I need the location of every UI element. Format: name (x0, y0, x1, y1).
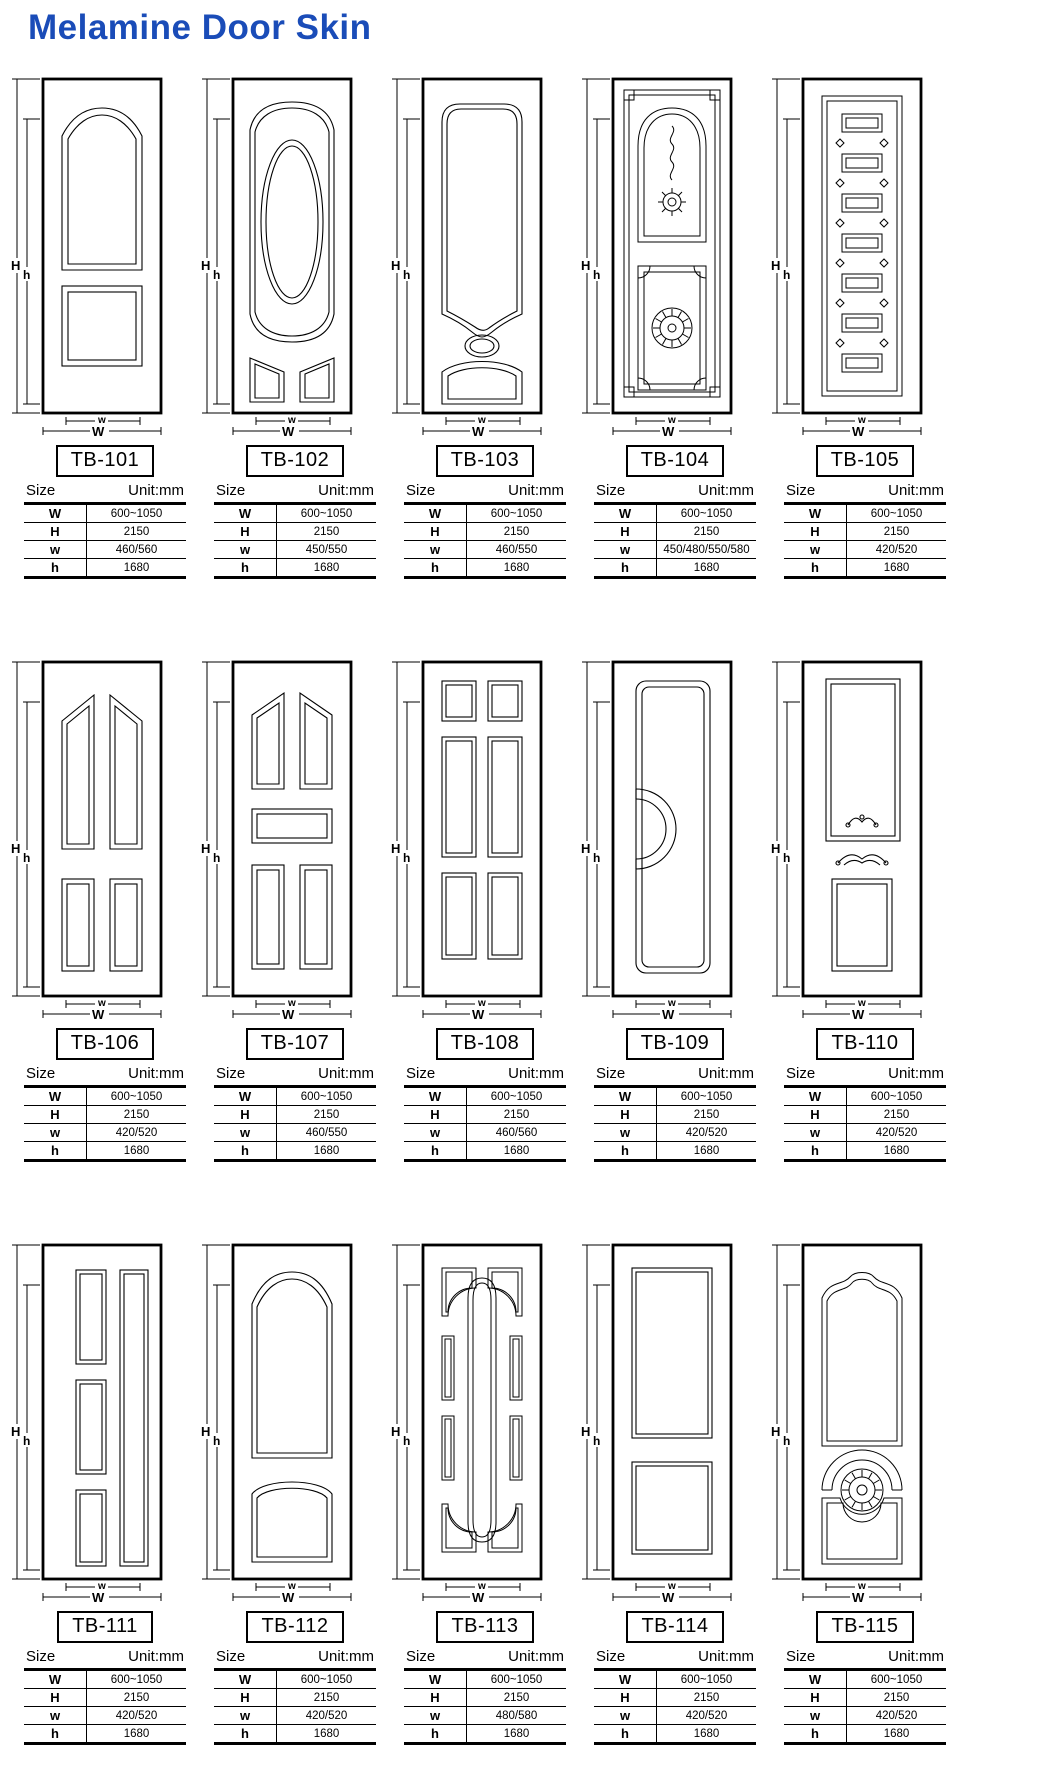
spec-value: 2150 (657, 1689, 757, 1707)
unit-label: Unit:mm (508, 482, 564, 499)
door-outline (613, 662, 731, 996)
spec-row-outer-width: W 600~1050 (24, 1670, 186, 1689)
spec-value: 1680 (87, 559, 187, 578)
dimension-lines (582, 1245, 731, 1601)
spec-key: W (784, 1670, 847, 1689)
spec-key: W (594, 1670, 657, 1689)
model-label: TB-108 (436, 1028, 535, 1060)
model-number: TB-110 (831, 1032, 898, 1054)
dim-label-outer-width: W (852, 1007, 865, 1019)
spec-value: 420/520 (657, 1124, 757, 1142)
door-design (822, 96, 902, 396)
door-drawing: H h w W (390, 74, 580, 436)
unit-label: Unit:mm (318, 1648, 374, 1665)
unit-label: Unit:mm (128, 1648, 184, 1665)
model-label: TB-110 (816, 1028, 913, 1060)
spec-row-outer-height: H 2150 (214, 523, 376, 541)
dim-label-inner-height: h (593, 1434, 600, 1448)
spec-key: h (594, 559, 657, 578)
model-label: TB-115 (816, 1611, 913, 1643)
spec-row-inner-height: h 1680 (214, 559, 376, 578)
spec-table: W 600~1050 H 2150 w 460/550 h 1680 (214, 1085, 376, 1162)
dim-label-outer-width: W (662, 424, 675, 436)
door-outline (803, 79, 921, 413)
spec-value: 420/520 (657, 1707, 757, 1725)
spec-row-inner-height: h 1680 (784, 559, 946, 578)
spec-value: 1680 (657, 1142, 757, 1161)
spec-value: 600~1050 (847, 1087, 947, 1106)
door-card: H h w W TB-104 Size Unit:mm W 600~1050 H… (580, 74, 770, 579)
dim-label-outer-width: W (472, 1007, 485, 1019)
dim-label-inner-height: h (403, 851, 410, 865)
spec-key: W (24, 1670, 87, 1689)
spec-key: h (24, 1725, 87, 1744)
spec-table: W 600~1050 H 2150 w 420/520 h 1680 (24, 1085, 186, 1162)
spec-row-inner-width: w 460/550 (214, 1124, 376, 1142)
dim-label-inner-height: h (213, 851, 220, 865)
dimension-lines (392, 662, 541, 1018)
spec-key: W (24, 504, 87, 523)
spec-key: H (594, 1106, 657, 1124)
unit-label: Unit:mm (888, 482, 944, 499)
dim-label-outer-height: H (11, 841, 20, 856)
dimension-lines (582, 662, 731, 1018)
door-card: H h w W TB-109 Size Unit:mm W 600~1050 H… (580, 657, 770, 1162)
door-outline (803, 1245, 921, 1579)
spec-row-outer-width: W 600~1050 (594, 1087, 756, 1106)
model-number: TB-108 (451, 1032, 520, 1054)
spec-row-inner-width: w 480/580 (404, 1707, 566, 1725)
spec-key: w (24, 1124, 87, 1142)
dimension-lines (582, 79, 731, 435)
spec-row-outer-width: W 600~1050 (594, 1670, 756, 1689)
spec-key: h (214, 1142, 277, 1161)
model-label: TB-113 (436, 1611, 533, 1643)
spec-row-inner-width: w 450/480/550/580 (594, 541, 756, 559)
spec-row-outer-height: H 2150 (214, 1689, 376, 1707)
spec-row-outer-height: H 2150 (214, 1106, 376, 1124)
spec-row-outer-width: W 600~1050 (404, 504, 566, 523)
spec-value: 600~1050 (657, 1087, 757, 1106)
spec-key: W (784, 504, 847, 523)
spec-row-inner-width: w 450/550 (214, 541, 376, 559)
door-drawing: H h w W (580, 657, 770, 1019)
spec-key: w (24, 541, 87, 559)
spec-key: H (214, 523, 277, 541)
door-design (442, 1268, 522, 1552)
spec-key: H (784, 523, 847, 541)
size-header: Size Unit:mm (214, 1648, 376, 1665)
door-outline (613, 79, 731, 413)
spec-row-outer-height: H 2150 (594, 1689, 756, 1707)
door-design (632, 1268, 712, 1554)
size-label: Size (26, 1648, 55, 1665)
spec-value: 480/580 (467, 1707, 567, 1725)
spec-row-inner-width: w 460/560 (24, 541, 186, 559)
door-outline (423, 79, 541, 413)
door-drawing: H h w W (200, 657, 390, 1019)
spec-value: 1680 (657, 559, 757, 578)
spec-row-outer-height: H 2150 (404, 1689, 566, 1707)
spec-value: 600~1050 (277, 1087, 377, 1106)
spec-key: h (784, 559, 847, 578)
spec-row-inner-height: h 1680 (404, 1142, 566, 1161)
spec-row-outer-height: H 2150 (404, 523, 566, 541)
unit-label: Unit:mm (698, 1648, 754, 1665)
spec-value: 1680 (657, 1725, 757, 1744)
spec-key: H (784, 1106, 847, 1124)
spec-value: 450/480/550/580 (657, 541, 757, 559)
spec-key: h (594, 1142, 657, 1161)
model-number: TB-113 (451, 1615, 518, 1637)
dim-label-inner-height: h (593, 851, 600, 865)
spec-key: w (214, 1707, 277, 1725)
dim-label-inner-height: h (783, 1434, 790, 1448)
dimension-lines (202, 1245, 351, 1601)
model-number: TB-109 (641, 1032, 710, 1054)
door-grid: H h w W TB-101 Size Unit:mm W 600~1050 H… (10, 74, 1060, 1745)
door-drawing: H h w W (770, 1240, 960, 1602)
dim-label-outer-width: W (282, 1007, 295, 1019)
dim-label-outer-width: W (92, 1007, 105, 1019)
spec-value: 2150 (657, 1106, 757, 1124)
spec-row-outer-width: W 600~1050 (784, 504, 946, 523)
spec-value: 420/520 (847, 1707, 947, 1725)
spec-value: 460/550 (467, 541, 567, 559)
size-label: Size (786, 482, 815, 499)
door-drawing: H h w W (200, 1240, 390, 1602)
size-header: Size Unit:mm (404, 1065, 566, 1082)
spec-value: 2150 (657, 523, 757, 541)
spec-value: 1680 (847, 559, 947, 578)
spec-value: 420/520 (277, 1707, 377, 1725)
spec-row-outer-height: H 2150 (24, 1689, 186, 1707)
size-label: Size (26, 1065, 55, 1082)
spec-key: H (24, 1106, 87, 1124)
spec-table: W 600~1050 H 2150 w 460/560 h 1680 (24, 502, 186, 579)
spec-key: w (594, 1707, 657, 1725)
spec-value: 2150 (467, 523, 567, 541)
unit-label: Unit:mm (508, 1065, 564, 1082)
spec-value: 2150 (847, 1106, 947, 1124)
size-header: Size Unit:mm (784, 482, 946, 499)
model-label: TB-107 (246, 1028, 345, 1060)
size-header: Size Unit:mm (24, 482, 186, 499)
door-design (624, 90, 720, 397)
spec-row-outer-height: H 2150 (784, 523, 946, 541)
dim-label-outer-height: H (581, 258, 590, 273)
dim-label-outer-width: W (662, 1007, 675, 1019)
spec-row-outer-width: W 600~1050 (214, 1087, 376, 1106)
spec-row-inner-height: h 1680 (24, 1142, 186, 1161)
spec-value: 600~1050 (467, 1670, 567, 1689)
unit-label: Unit:mm (318, 482, 374, 499)
dim-label-inner-height: h (593, 268, 600, 282)
door-outline (233, 662, 351, 996)
spec-row-outer-height: H 2150 (404, 1106, 566, 1124)
dimension-lines (392, 79, 541, 435)
spec-row-inner-height: h 1680 (784, 1725, 946, 1744)
spec-row-outer-width: W 600~1050 (24, 504, 186, 523)
unit-label: Unit:mm (698, 1065, 754, 1082)
spec-row-outer-height: H 2150 (24, 1106, 186, 1124)
spec-value: 600~1050 (467, 504, 567, 523)
spec-value: 600~1050 (467, 1087, 567, 1106)
spec-row-inner-width: w 420/520 (784, 541, 946, 559)
unit-label: Unit:mm (888, 1648, 944, 1665)
spec-row-inner-height: h 1680 (784, 1142, 946, 1161)
spec-key: W (404, 1670, 467, 1689)
size-label: Size (406, 1065, 435, 1082)
model-number: TB-111 (72, 1615, 138, 1637)
model-label: TB-105 (816, 445, 915, 477)
door-outline (43, 662, 161, 996)
model-label: TB-106 (56, 1028, 155, 1060)
size-header: Size Unit:mm (24, 1648, 186, 1665)
dim-label-outer-width: W (852, 424, 865, 436)
door-outline (423, 662, 541, 996)
door-drawing: H h w W (200, 74, 390, 436)
door-drawing: H h w W (770, 74, 960, 436)
unit-label: Unit:mm (128, 1065, 184, 1082)
unit-label: Unit:mm (888, 1065, 944, 1082)
spec-value: 460/560 (87, 541, 187, 559)
model-label: TB-111 (57, 1611, 153, 1643)
model-number: TB-101 (71, 449, 140, 471)
spec-value: 600~1050 (847, 1670, 947, 1689)
spec-key: w (784, 541, 847, 559)
spec-value: 2150 (87, 1106, 187, 1124)
dim-label-outer-height: H (201, 258, 210, 273)
door-design (62, 108, 142, 366)
size-header: Size Unit:mm (214, 482, 376, 499)
spec-table: W 600~1050 H 2150 w 420/520 h 1680 (784, 1085, 946, 1162)
spec-key: w (594, 541, 657, 559)
spec-row-inner-height: h 1680 (594, 1725, 756, 1744)
dim-label-outer-height: H (11, 258, 20, 273)
door-card: H h w W TB-103 Size Unit:mm W 600~1050 H… (390, 74, 580, 579)
spec-value: 600~1050 (277, 1670, 377, 1689)
spec-value: 460/550 (277, 1124, 377, 1142)
model-number: TB-114 (641, 1615, 708, 1637)
size-label: Size (216, 482, 245, 499)
model-number: TB-102 (261, 449, 330, 471)
model-number: TB-106 (71, 1032, 140, 1054)
spec-key: h (214, 1725, 277, 1744)
dim-label-outer-width: W (662, 1590, 675, 1602)
dim-label-outer-width: W (92, 424, 105, 436)
spec-key: H (24, 523, 87, 541)
spec-table: W 600~1050 H 2150 w 420/520 h 1680 (594, 1085, 756, 1162)
spec-table: W 600~1050 H 2150 w 420/520 h 1680 (784, 1668, 946, 1745)
spec-value: 600~1050 (87, 1670, 187, 1689)
spec-value: 600~1050 (87, 504, 187, 523)
spec-row-outer-height: H 2150 (784, 1689, 946, 1707)
spec-value: 2150 (847, 523, 947, 541)
spec-value: 2150 (467, 1106, 567, 1124)
dim-label-outer-height: H (771, 841, 780, 856)
unit-label: Unit:mm (508, 1648, 564, 1665)
door-drawing: H h w W (580, 1240, 770, 1602)
spec-value: 2150 (277, 1106, 377, 1124)
spec-key: w (404, 1707, 467, 1725)
spec-table: W 600~1050 H 2150 w 420/520 h 1680 (24, 1668, 186, 1745)
spec-key: W (404, 1087, 467, 1106)
spec-row-inner-width: w 460/550 (404, 541, 566, 559)
unit-label: Unit:mm (698, 482, 754, 499)
door-design (62, 695, 142, 971)
spec-row-inner-height: h 1680 (404, 1725, 566, 1744)
spec-value: 2150 (467, 1689, 567, 1707)
spec-value: 1680 (467, 559, 567, 578)
spec-value: 600~1050 (657, 504, 757, 523)
spec-key: H (404, 523, 467, 541)
door-design (822, 1273, 902, 1565)
spec-table: W 600~1050 H 2150 w 460/560 h 1680 (404, 1085, 566, 1162)
door-drawing: H h w W (10, 74, 200, 436)
spec-key: H (594, 523, 657, 541)
spec-row-inner-height: h 1680 (594, 1142, 756, 1161)
door-design (252, 1272, 332, 1562)
spec-row-inner-height: h 1680 (214, 1725, 376, 1744)
spec-value: 1680 (847, 1142, 947, 1161)
size-header: Size Unit:mm (784, 1648, 946, 1665)
model-number: TB-112 (261, 1615, 328, 1637)
door-outline (613, 1245, 731, 1579)
spec-value: 600~1050 (277, 504, 377, 523)
spec-key: w (214, 541, 277, 559)
dimension-lines (772, 1245, 921, 1601)
spec-row-outer-width: W 600~1050 (24, 1087, 186, 1106)
spec-key: W (214, 504, 277, 523)
door-outline (803, 662, 921, 996)
model-number: TB-104 (641, 449, 710, 471)
dim-label-inner-height: h (213, 1434, 220, 1448)
spec-value: 420/520 (847, 541, 947, 559)
spec-table: W 600~1050 H 2150 w 420/520 h 1680 (594, 1668, 756, 1745)
door-drawing: H h w W (580, 74, 770, 436)
spec-row-inner-height: h 1680 (404, 559, 566, 578)
spec-key: w (404, 541, 467, 559)
model-label: TB-103 (436, 445, 535, 477)
size-header: Size Unit:mm (404, 1648, 566, 1665)
spec-key: h (214, 559, 277, 578)
door-outline (423, 1245, 541, 1579)
dimension-lines (12, 662, 161, 1018)
door-card: H h w W TB-111 Size Unit:mm W 600~1050 H… (10, 1240, 200, 1745)
door-design (826, 679, 900, 971)
spec-key: h (784, 1142, 847, 1161)
size-label: Size (596, 482, 625, 499)
dim-label-inner-height: h (213, 268, 220, 282)
spec-row-outer-width: W 600~1050 (404, 1670, 566, 1689)
size-label: Size (786, 1065, 815, 1082)
spec-table: W 600~1050 H 2150 w 480/580 h 1680 (404, 1668, 566, 1745)
model-label: TB-114 (626, 1611, 723, 1643)
dim-label-outer-height: H (391, 258, 400, 273)
dim-label-inner-height: h (783, 851, 790, 865)
dim-label-outer-height: H (771, 1424, 780, 1439)
spec-row-outer-height: H 2150 (24, 523, 186, 541)
dim-label-inner-height: h (23, 1434, 30, 1448)
size-label: Size (406, 1648, 435, 1665)
spec-key: H (214, 1106, 277, 1124)
dim-label-outer-height: H (771, 258, 780, 273)
spec-key: W (214, 1670, 277, 1689)
dim-label-inner-height: h (403, 268, 410, 282)
spec-table: W 600~1050 H 2150 w 450/480/550/580 h 16… (594, 502, 756, 579)
dim-label-inner-height: h (783, 268, 790, 282)
size-label: Size (596, 1065, 625, 1082)
dim-label-outer-height: H (581, 1424, 590, 1439)
spec-row-outer-width: W 600~1050 (214, 504, 376, 523)
spec-key: W (784, 1087, 847, 1106)
spec-value: 1680 (87, 1725, 187, 1744)
spec-row-inner-width: w 420/520 (24, 1707, 186, 1725)
spec-key: W (24, 1087, 87, 1106)
spec-key: h (404, 559, 467, 578)
spec-value: 2150 (277, 1689, 377, 1707)
spec-key: H (404, 1689, 467, 1707)
size-label: Size (406, 482, 435, 499)
door-card: H h w W TB-114 Size Unit:mm W 600~1050 H… (580, 1240, 770, 1745)
spec-key: W (594, 1087, 657, 1106)
door-card: H h w W TB-110 Size Unit:mm W 600~1050 H… (770, 657, 960, 1162)
spec-row-inner-width: w 420/520 (784, 1707, 946, 1725)
spec-row-inner-width: w 420/520 (594, 1707, 756, 1725)
dim-label-outer-height: H (581, 841, 590, 856)
spec-row-outer-width: W 600~1050 (784, 1670, 946, 1689)
spec-key: H (24, 1689, 87, 1707)
spec-table: W 600~1050 H 2150 w 420/520 h 1680 (784, 502, 946, 579)
spec-value: 1680 (467, 1142, 567, 1161)
spec-key: w (594, 1124, 657, 1142)
dim-label-outer-width: W (282, 1590, 295, 1602)
door-design (636, 681, 710, 973)
model-label: TB-104 (626, 445, 725, 477)
spec-key: w (784, 1707, 847, 1725)
door-design (252, 693, 332, 969)
spec-value: 600~1050 (87, 1087, 187, 1106)
door-drawing: H h w W (390, 1240, 580, 1602)
model-number: TB-107 (261, 1032, 330, 1054)
spec-key: W (214, 1087, 277, 1106)
dimension-lines (12, 1245, 161, 1601)
door-outline (233, 1245, 351, 1579)
spec-value: 2150 (87, 1689, 187, 1707)
door-card: H h w W TB-112 Size Unit:mm W 600~1050 H… (200, 1240, 390, 1745)
spec-value: 600~1050 (847, 504, 947, 523)
model-number: TB-115 (831, 1615, 898, 1637)
door-card: H h w W TB-101 Size Unit:mm W 600~1050 H… (10, 74, 200, 579)
size-header: Size Unit:mm (594, 1648, 756, 1665)
catalog-page: { "title": "Melamine Door Skin", "colors… (0, 0, 1060, 1765)
door-drawing: H h w W (10, 1240, 200, 1602)
dim-label-inner-height: h (23, 268, 30, 282)
model-label: TB-112 (246, 1611, 343, 1643)
door-design (442, 104, 522, 404)
spec-key: w (24, 1707, 87, 1725)
spec-row-inner-width: w 420/520 (784, 1124, 946, 1142)
spec-value: 460/560 (467, 1124, 567, 1142)
spec-table: W 600~1050 H 2150 w 450/550 h 1680 (214, 502, 376, 579)
door-drawing: H h w W (10, 657, 200, 1019)
unit-label: Unit:mm (128, 482, 184, 499)
dimension-lines (202, 662, 351, 1018)
spec-key: w (784, 1124, 847, 1142)
dim-label-outer-width: W (852, 1590, 865, 1602)
spec-table: W 600~1050 H 2150 w 420/520 h 1680 (214, 1668, 376, 1745)
